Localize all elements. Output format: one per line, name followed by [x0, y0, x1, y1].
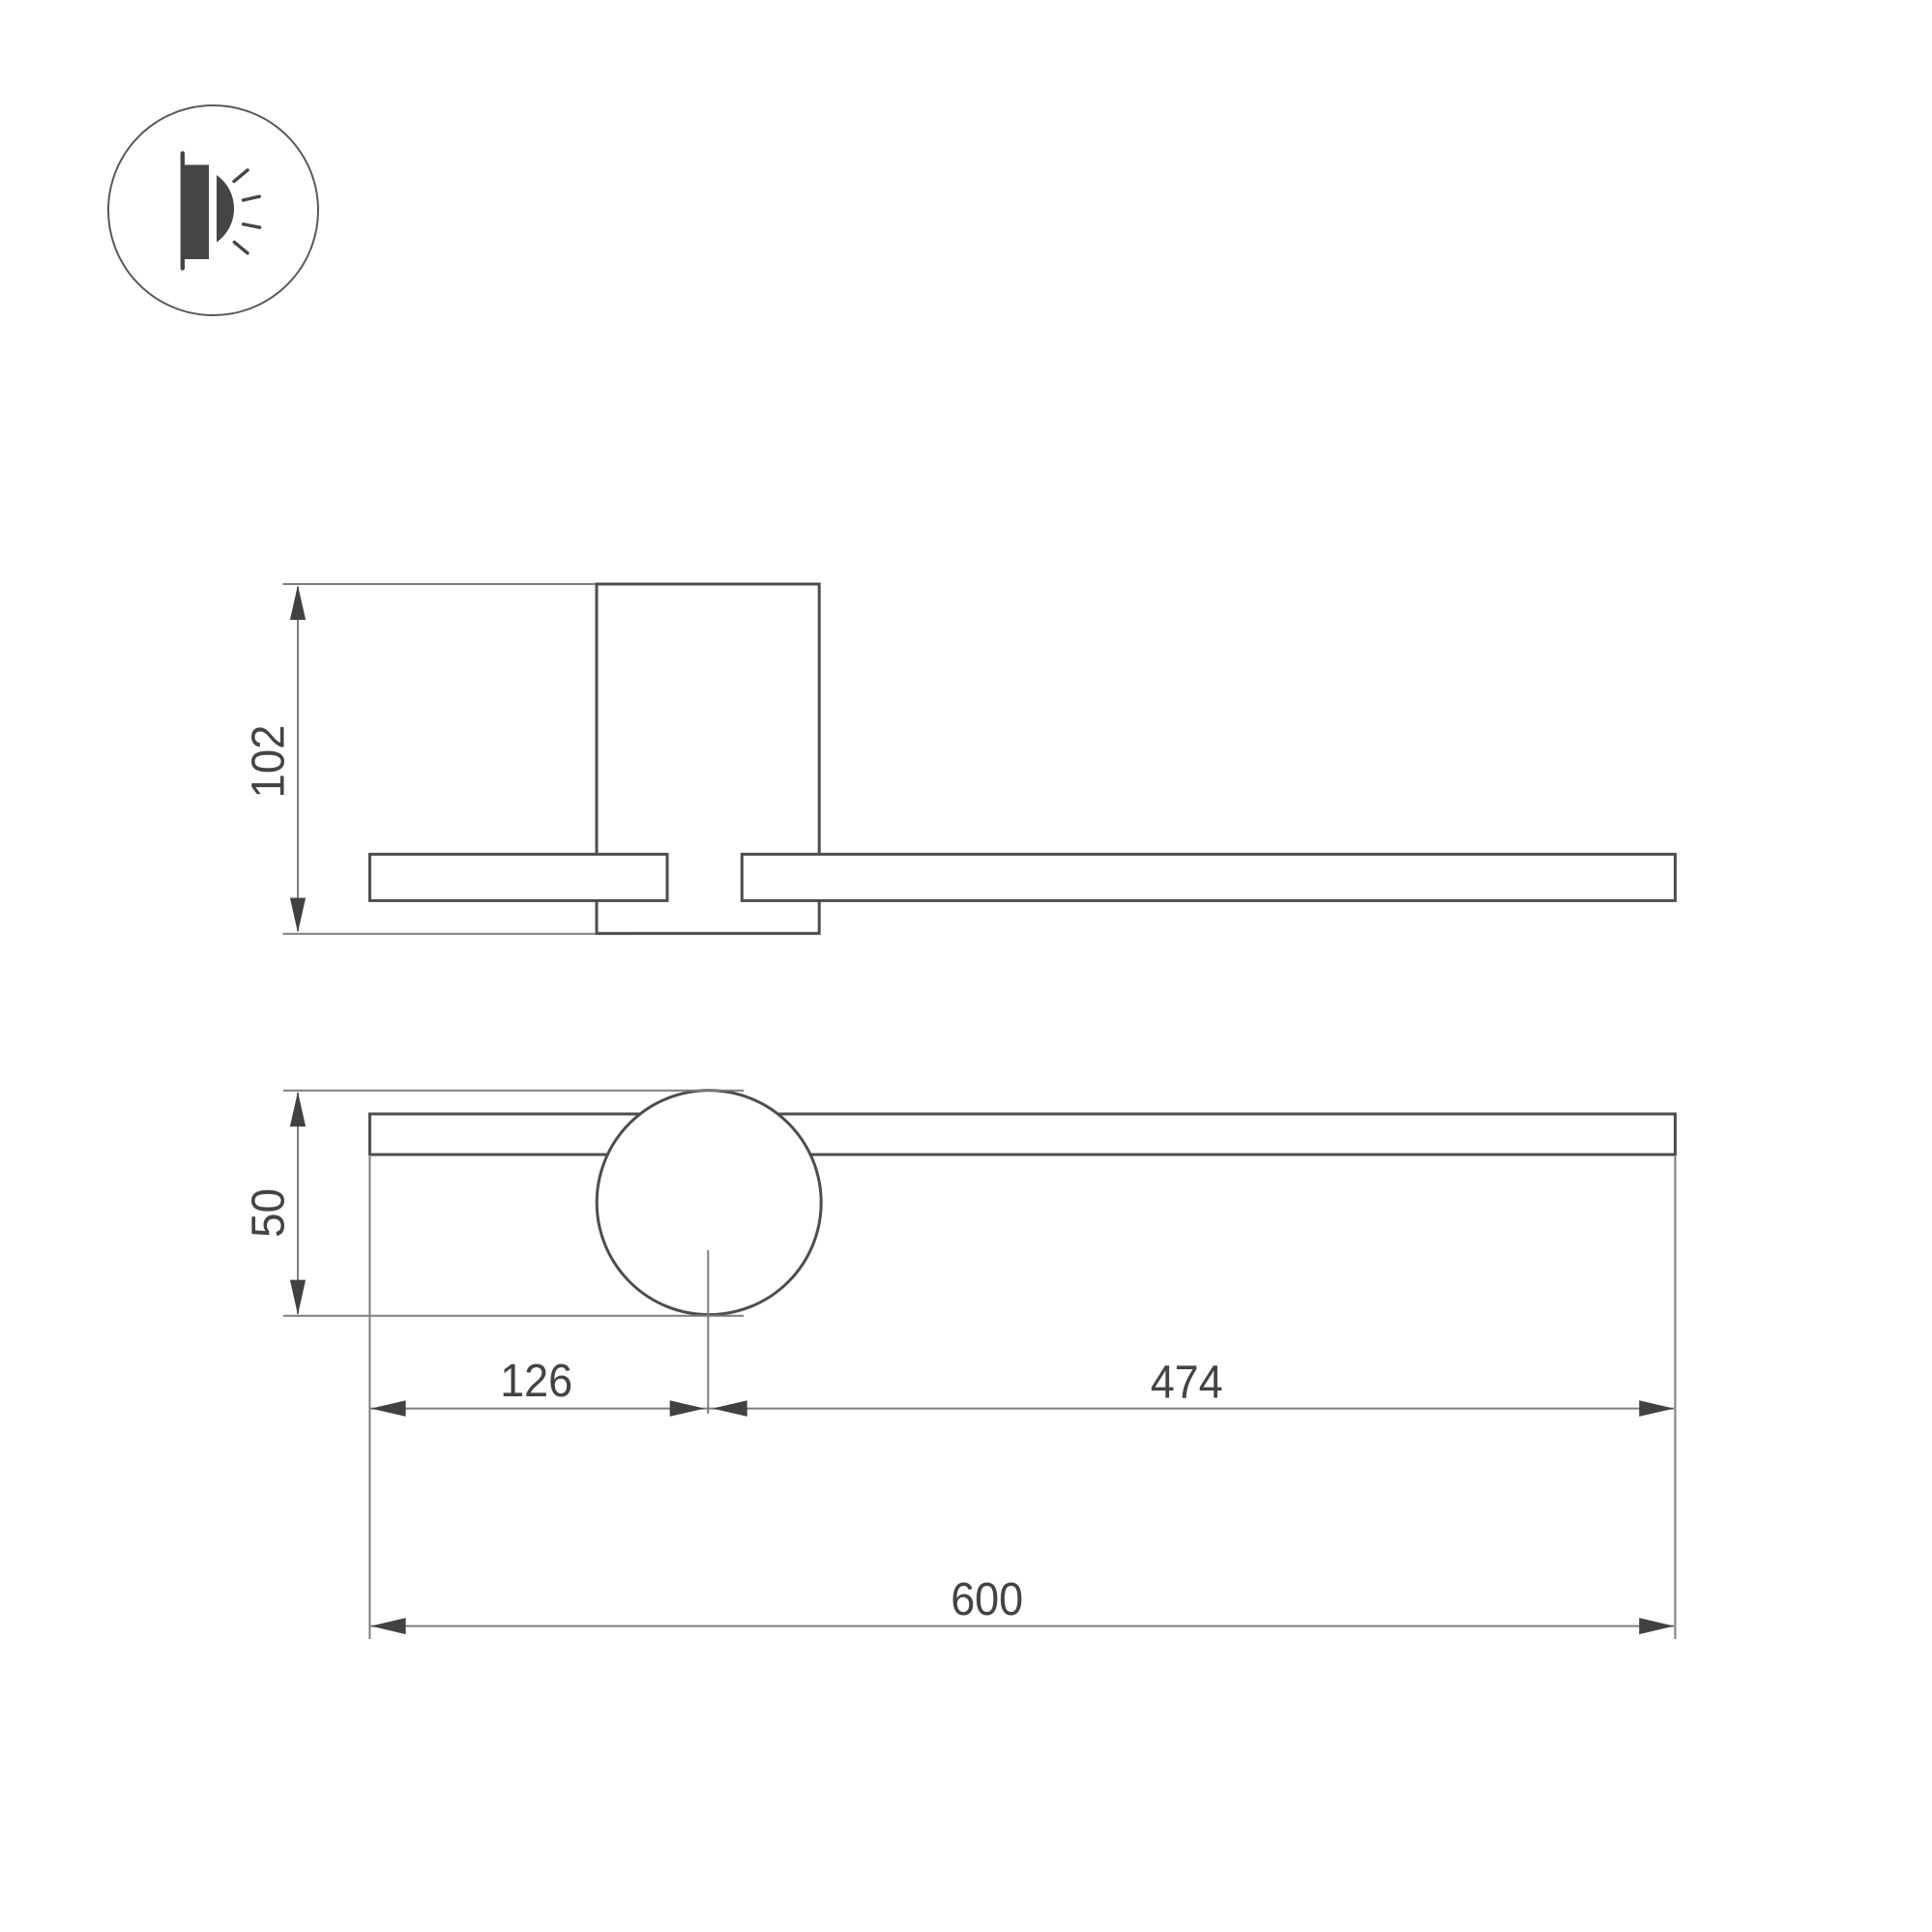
svg-text:600: 600 — [951, 1574, 1023, 1625]
svg-text:474: 474 — [1151, 1358, 1223, 1409]
svg-text:126: 126 — [500, 1356, 572, 1407]
svg-text:102: 102 — [244, 725, 295, 799]
svg-text:50: 50 — [244, 1188, 295, 1238]
